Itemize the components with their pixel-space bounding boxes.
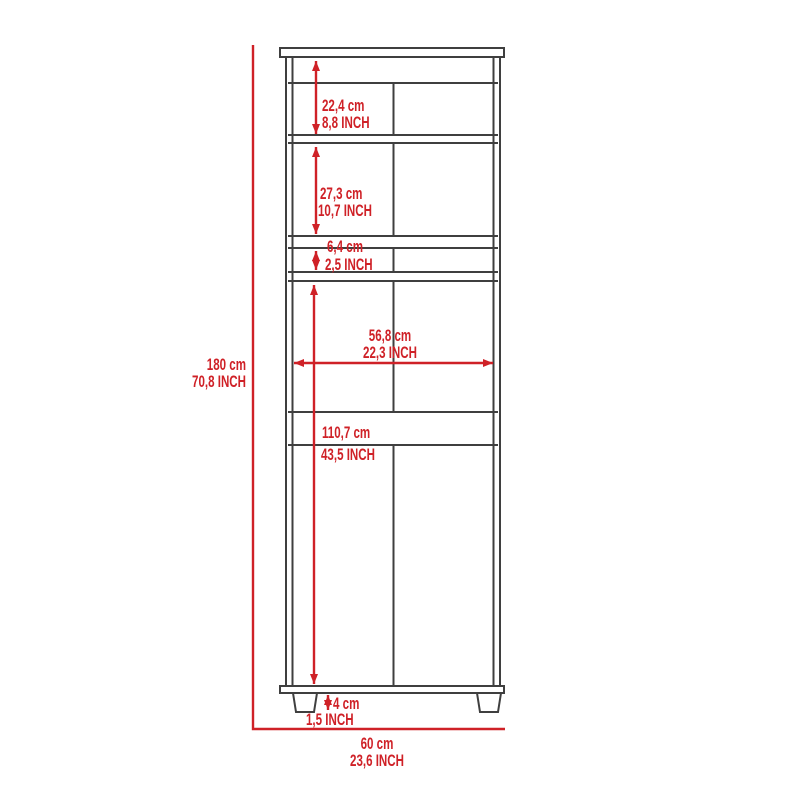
label-middle-compartment-height-inch: 10,7 INCH bbox=[318, 202, 372, 219]
cabinet-base-panel bbox=[280, 686, 504, 693]
label-middle-compartment-height-cm: 27,3 cm bbox=[320, 185, 362, 202]
label-top-compartment-height-cm: 22,4 cm bbox=[322, 97, 364, 114]
label-interior-width-inch: 22,3 INCH bbox=[342, 344, 437, 361]
label-overall-width-inch: 23,6 INCH bbox=[329, 752, 424, 769]
label-overall-width-cm: 60 cm bbox=[329, 735, 424, 752]
furniture-dimension-diagram: 180 cm 70,8 INCH 60 cm 23,6 INCH 22,4 cm… bbox=[0, 0, 800, 800]
label-drawer-height-inch: 2,5 INCH bbox=[325, 256, 373, 273]
dimension-lines bbox=[253, 45, 505, 729]
overall-dimension-boundary-line bbox=[253, 45, 505, 729]
label-drawer-height-cm: 6,4 cm bbox=[327, 238, 363, 255]
label-lower-section-height-inch: 43,5 INCH bbox=[321, 446, 375, 463]
label-lower-section-height-cm: 110,7 cm bbox=[322, 424, 370, 441]
label-overall-height-inch: 70,8 INCH bbox=[178, 373, 246, 390]
label-interior-width-cm: 56,8 cm bbox=[342, 327, 437, 344]
cabinet-right-foot bbox=[477, 693, 501, 712]
cabinet-top-panel bbox=[280, 48, 504, 57]
diagram-linework bbox=[0, 0, 800, 800]
label-top-compartment-height-inch: 8,8 INCH bbox=[322, 114, 370, 131]
label-leg-height-inch: 1,5 INCH bbox=[306, 711, 354, 728]
label-overall-height-cm: 180 cm bbox=[178, 356, 246, 373]
